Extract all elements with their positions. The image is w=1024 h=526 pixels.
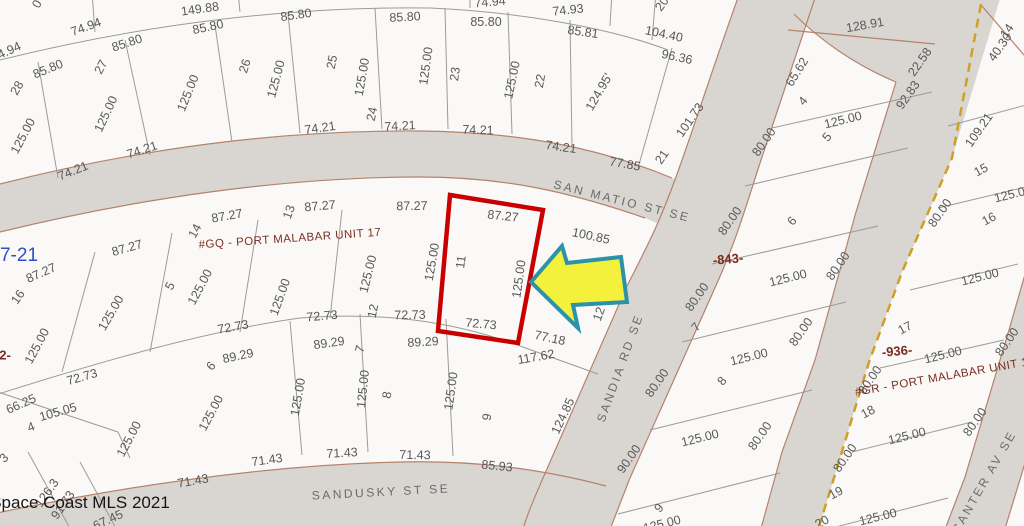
dimension-label: 125.00 — [357, 254, 380, 294]
dimension-label: 0 — [29, 0, 45, 11]
dimension-label: 71.43 — [176, 471, 209, 490]
lot-label: 6 — [203, 359, 218, 373]
lot-label: 6 — [784, 214, 799, 228]
dimension-label: 149.88 — [180, 0, 220, 19]
dimension-label: 85.80 — [191, 17, 225, 37]
dimension-label: 72.73 — [216, 317, 249, 336]
dimension-label: 74.93 — [552, 1, 585, 18]
dimension-label: 74.94 — [0, 39, 23, 65]
lot-label: 20 — [813, 513, 832, 526]
dimension-label: 87.27 — [304, 198, 336, 215]
dimension-label: 125.00 — [768, 267, 808, 290]
dimension-label: 100.85 — [571, 225, 611, 247]
dimension-label: 125.00 — [196, 393, 226, 433]
dimension-label: 87.27 — [396, 199, 428, 214]
dimension-label: 125.00 — [288, 377, 308, 417]
dimension-label: 124.95' — [583, 71, 615, 113]
lot-label: 20 — [652, 0, 671, 14]
lot-label: 16 — [8, 287, 27, 306]
dimension-label: 80.00 — [715, 204, 744, 238]
dimension-label: 109.21 — [962, 110, 995, 149]
street-label-san-matio-st-se: SAN MATIO ST SE — [552, 177, 692, 225]
dimension-label: 85.93 — [481, 457, 514, 474]
dimension-label: 125.00 — [993, 183, 1024, 206]
lot-label: 7 — [352, 344, 367, 354]
lot-label: 21 — [652, 147, 671, 166]
dimension-label: 12 — [590, 305, 608, 323]
dimension-label: 65.62 — [783, 55, 811, 89]
dimension-label: 74.21 — [545, 138, 578, 156]
dimension-label: 80.00 — [823, 249, 852, 283]
dimension-label: 128.91 — [845, 15, 885, 35]
dimension-label: 125.00 — [858, 506, 898, 526]
lot-label: 19 — [827, 484, 846, 503]
dimension-label: 80.00 — [925, 196, 954, 230]
dimension-label: 72.73 — [65, 366, 99, 388]
lot-label: 9 — [651, 501, 666, 515]
dimension-label: 74.94 — [474, 0, 506, 10]
dimension-label: 85.80 — [280, 6, 313, 24]
dimension-label: 92.83 — [893, 78, 922, 112]
dimension-label: 72.73 — [465, 316, 497, 333]
dimension-label: 125.00 — [960, 266, 1000, 289]
dimension-label: 72.73 — [306, 308, 338, 325]
dimension-label: 125.00 — [509, 259, 528, 299]
dimension-label: 85.81 — [567, 23, 600, 41]
dimension-label: 125.00 — [416, 46, 435, 86]
dimension-label: 101.73 — [673, 100, 706, 139]
dimension-label: 87.27 — [110, 237, 144, 259]
mls-credit: Space Coast MLS 2021 — [0, 493, 170, 513]
dimension-label: 87.27 — [210, 206, 243, 225]
block-number-left-partial: 2- — [0, 348, 11, 363]
dimension-label: 71.43 — [326, 445, 358, 461]
dimension-label: 125.00 — [823, 109, 863, 132]
dimension-label: 74.21 — [462, 122, 494, 137]
dimension-label: 80.00 — [992, 325, 1021, 359]
dimension-label: 125.00 — [501, 60, 523, 100]
dimension-label: 125.00 — [352, 57, 372, 97]
dimension-label: 72.73 — [394, 308, 426, 323]
lot-label: 24 — [364, 106, 381, 123]
lot-label: 23 — [447, 66, 463, 82]
dimension-label: 80.00 — [786, 315, 815, 349]
dimension-label: 125.00 — [22, 326, 52, 366]
dimension-label: 66.25 — [4, 391, 38, 417]
dimension-label: 125.00 — [8, 116, 38, 156]
lot-label: 18 — [859, 403, 878, 422]
dimension-label: 80.00 — [830, 441, 859, 475]
dimension-label: 125.00 — [680, 427, 720, 450]
dimension-label: 125.00 — [887, 425, 927, 448]
street-label-sandia-rd-se: SANDIA RD SE — [594, 312, 646, 424]
dimension-label: 80.00 — [960, 405, 989, 439]
lot-label: 3 — [0, 451, 11, 466]
block-number-936: -936- — [881, 342, 913, 360]
lot-label: 16 — [980, 210, 999, 229]
dimension-label: 80.00 — [642, 366, 671, 400]
dimension-label: 89.29 — [313, 334, 346, 352]
lot-label: 8 — [380, 390, 395, 399]
lot-label: 28 — [7, 78, 26, 97]
dimension-label: 117.62 — [516, 347, 555, 367]
street-label-canter-av-se: CANTER AV SE — [949, 428, 1019, 526]
dimension-label: 125.00 — [174, 73, 201, 114]
dimension-label: 74.21 — [56, 159, 90, 184]
dimension-label: 74.94 — [69, 15, 103, 39]
dimension-label: 77.18 — [533, 328, 567, 348]
dimension-label: 89.29 — [407, 334, 439, 350]
lot-label: 8 — [714, 374, 729, 388]
dimension-label: 125.00 — [92, 94, 121, 135]
lot-label: 12 — [365, 303, 382, 320]
map-labels-layer: 0149.8874.9474.9474.9385.81104.4096.3674… — [0, 0, 1024, 526]
dimension-label: 85.80 — [31, 57, 65, 82]
dimension-label: 125.00 — [114, 419, 144, 459]
lot-label: 13 — [280, 203, 298, 221]
dimension-label: 77.85 — [608, 154, 641, 173]
street-label-sandusky-st-se: SANDUSKY ST SE — [311, 481, 450, 502]
block-number-843: -843- — [712, 250, 744, 268]
lot-label: 25 — [324, 54, 341, 71]
dimension-label: 96.36 — [660, 47, 694, 67]
dimension-label: 105.05 — [38, 400, 79, 424]
dimension-label: 125.00 — [923, 344, 963, 367]
lot-label: 9 — [480, 412, 495, 421]
dimension-label: 125.00 — [267, 277, 293, 318]
dimension-label: 74.21 — [304, 119, 337, 137]
dimension-label: 74.21 — [384, 118, 416, 134]
plat-page-ref: 7-21 — [0, 245, 38, 267]
dimension-label: 71.43 — [251, 451, 284, 469]
lot-label: 4 — [795, 94, 810, 108]
dimension-label: 125.00 — [185, 267, 215, 307]
plat-map: 0149.8874.9474.9474.9385.81104.4096.3674… — [0, 0, 1024, 526]
dimension-label: 22.58 — [905, 45, 934, 79]
dimension-label: 124.85 — [549, 396, 578, 437]
dimension-label: 80.00 — [749, 125, 778, 159]
dimension-label: 125.00 — [95, 293, 126, 333]
lot-label: 5 — [819, 130, 834, 144]
lot-label: 5 — [162, 280, 178, 293]
dimension-label: 85.80 — [110, 32, 144, 55]
lot-label: 14 — [186, 222, 205, 241]
dimension-label: 125.00 — [264, 59, 287, 100]
dimension-label: 125.00 — [354, 369, 372, 408]
lot-label: 22 — [532, 73, 548, 89]
dimension-label: 104.40 — [644, 23, 684, 45]
lot-label: 15 — [972, 161, 991, 180]
dimension-label: 90.00 — [614, 442, 643, 476]
dimension-label: 71.43 — [399, 448, 431, 463]
dimension-label: 85.80 — [470, 15, 501, 29]
lot-label: 27 — [92, 58, 111, 77]
dimension-label: 40.30 — [985, 30, 1014, 64]
dimension-label: 89.29 — [221, 346, 255, 366]
subdivision-label-unit-17: #GQ - PORT MALABAR UNIT 17 — [198, 227, 381, 252]
dimension-label: 125.00 — [422, 242, 442, 282]
dimension-label: 74.21 — [125, 139, 159, 162]
dimension-label: 85.80 — [389, 9, 421, 25]
lot-label: 7 — [688, 320, 703, 334]
dimension-label: 125.00 — [729, 346, 769, 369]
dimension-label: 80.00 — [682, 280, 711, 314]
dimension-label: 80.00 — [745, 419, 774, 453]
lot-label: 26 — [236, 57, 254, 75]
dimension-label: 87.27 — [487, 207, 520, 224]
lot-label: 4 — [25, 419, 36, 435]
highlight-lot-number: 11 — [453, 255, 469, 270]
lot-label: 17 — [896, 319, 915, 338]
dimension-label: 125.00 — [441, 371, 460, 411]
